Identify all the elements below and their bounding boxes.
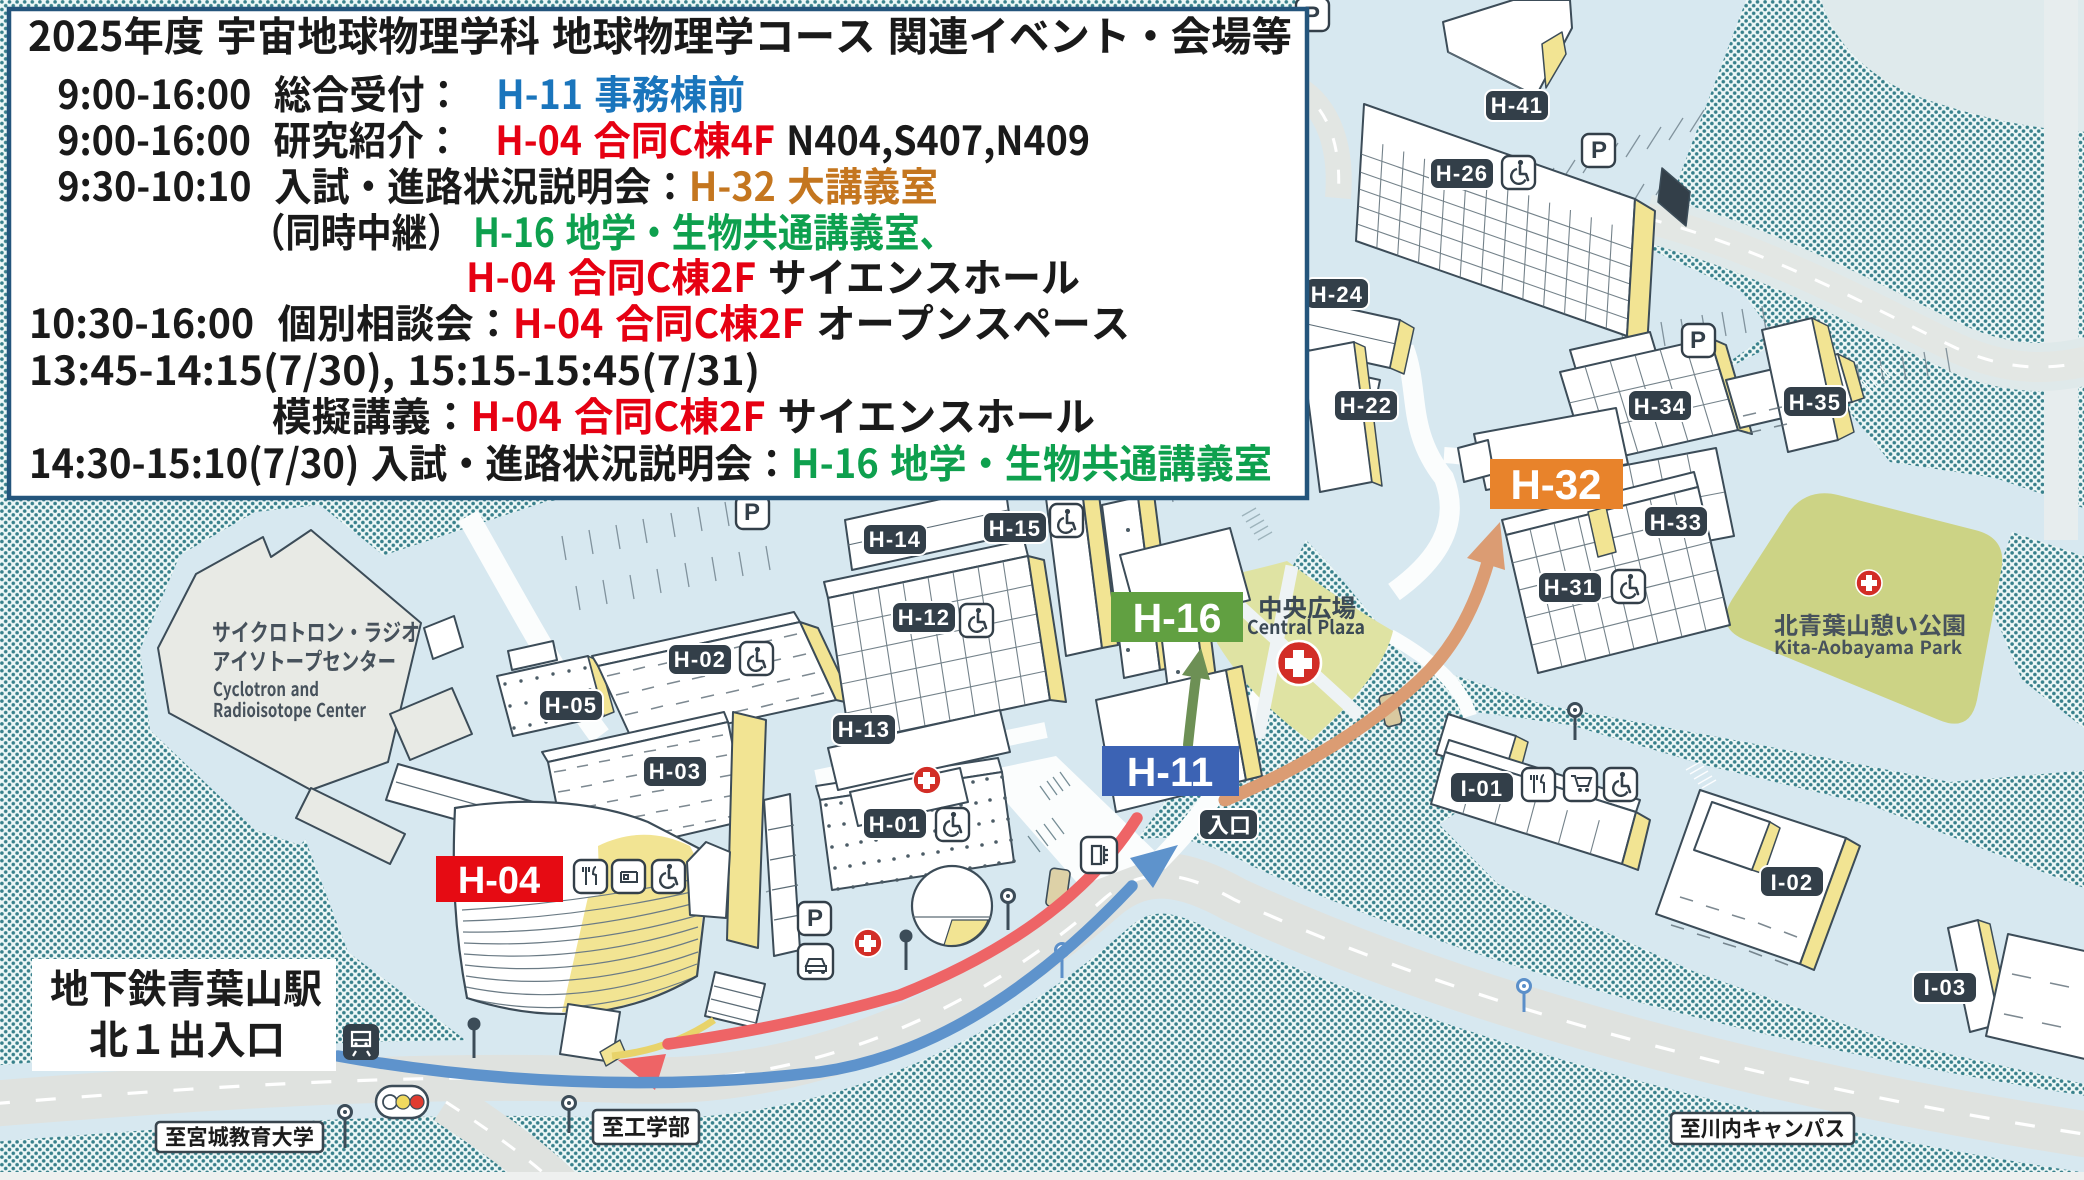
svg-text:P: P — [807, 905, 823, 932]
svg-text:H-05: H-05 — [545, 693, 598, 718]
svg-text:H-01: H-01 — [869, 812, 922, 837]
svg-text:I-02: I-02 — [1771, 870, 1814, 895]
svg-text:H-16: H-16 — [1133, 595, 1222, 641]
svg-text:H-15: H-15 — [989, 516, 1042, 541]
svg-text:H-33: H-33 — [1650, 510, 1703, 535]
svg-text:H-02: H-02 — [674, 647, 727, 672]
svg-text:H-04: H-04 — [458, 860, 540, 902]
svg-text:H-34: H-34 — [1634, 394, 1687, 419]
svg-text:H-13: H-13 — [838, 717, 891, 742]
svg-text:H-14: H-14 — [869, 527, 922, 552]
svg-text:I-03: I-03 — [1924, 975, 1967, 1000]
svg-text:H-31: H-31 — [1544, 575, 1597, 600]
svg-text:H-12: H-12 — [898, 605, 951, 630]
svg-text:H-11: H-11 — [1127, 749, 1214, 795]
svg-text:P: P — [744, 499, 760, 526]
svg-text:H-03: H-03 — [649, 759, 702, 784]
svg-text:H-35: H-35 — [1789, 390, 1842, 415]
svg-text:P: P — [1690, 327, 1706, 354]
svg-text:H-32: H-32 — [1510, 461, 1601, 508]
svg-text:H-24: H-24 — [1311, 282, 1364, 307]
svg-text:I-01: I-01 — [1461, 776, 1504, 801]
svg-text:H-22: H-22 — [1340, 393, 1393, 418]
svg-text:P: P — [1591, 137, 1607, 164]
svg-text:H-41: H-41 — [1491, 93, 1544, 118]
svg-text:H-26: H-26 — [1436, 161, 1489, 186]
